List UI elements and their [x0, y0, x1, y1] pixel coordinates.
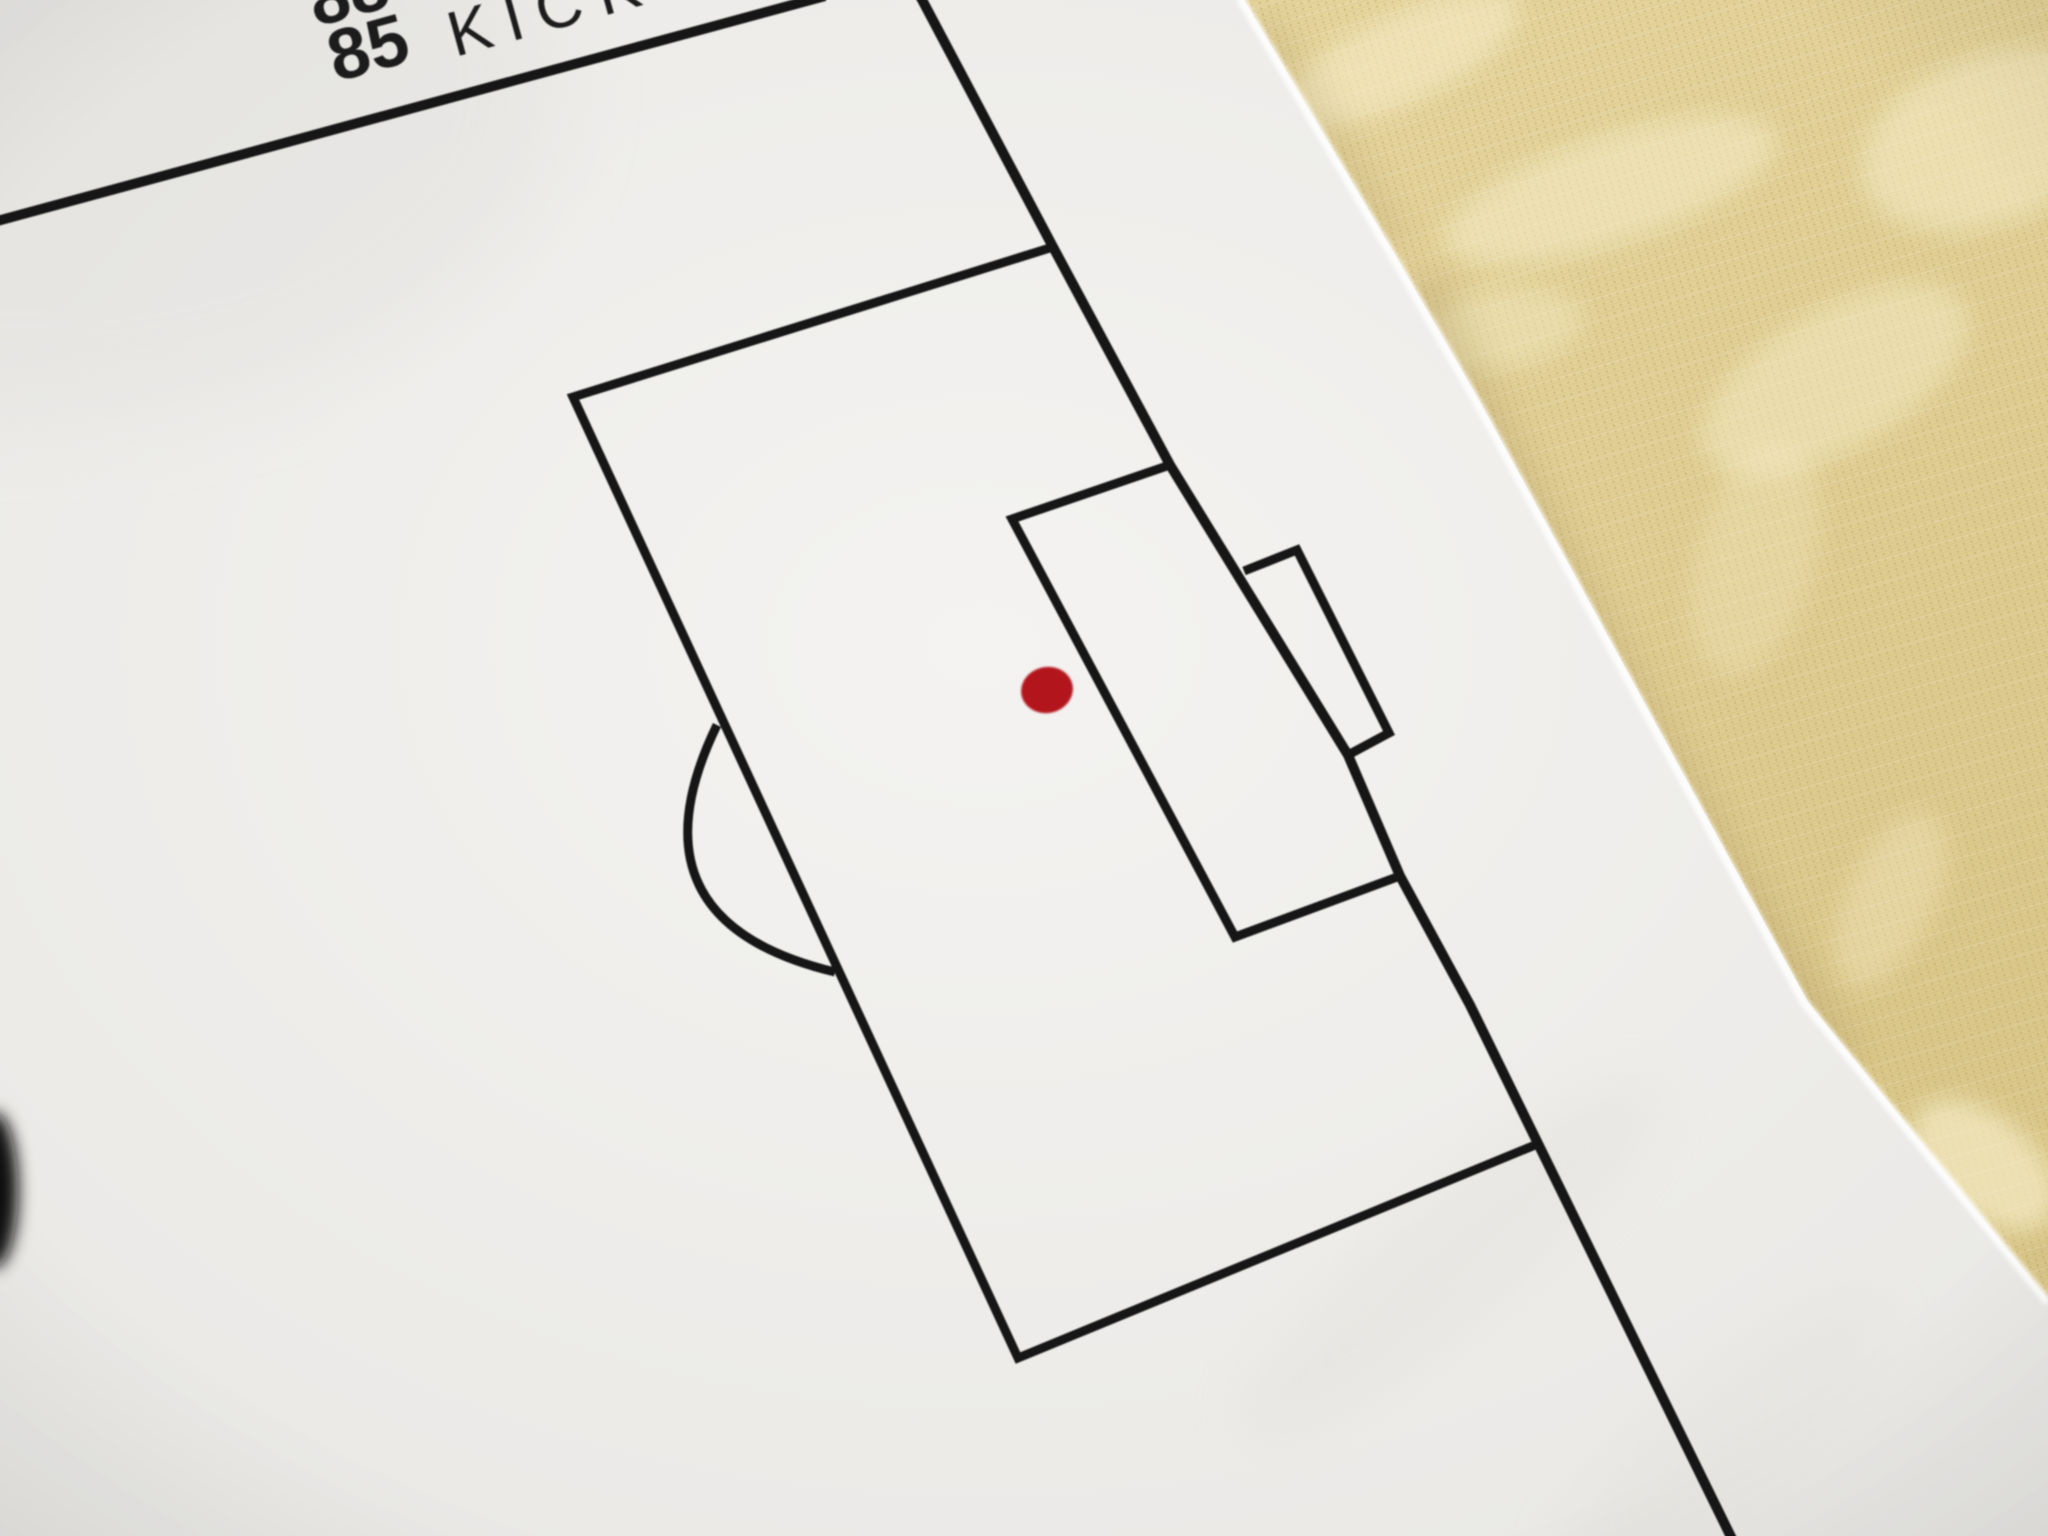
photo: 88 85 KIC K [0, 0, 2048, 1536]
photo-vignette [0, 0, 2048, 1536]
photo-canvas: 88 85 KIC K [0, 0, 2048, 1536]
